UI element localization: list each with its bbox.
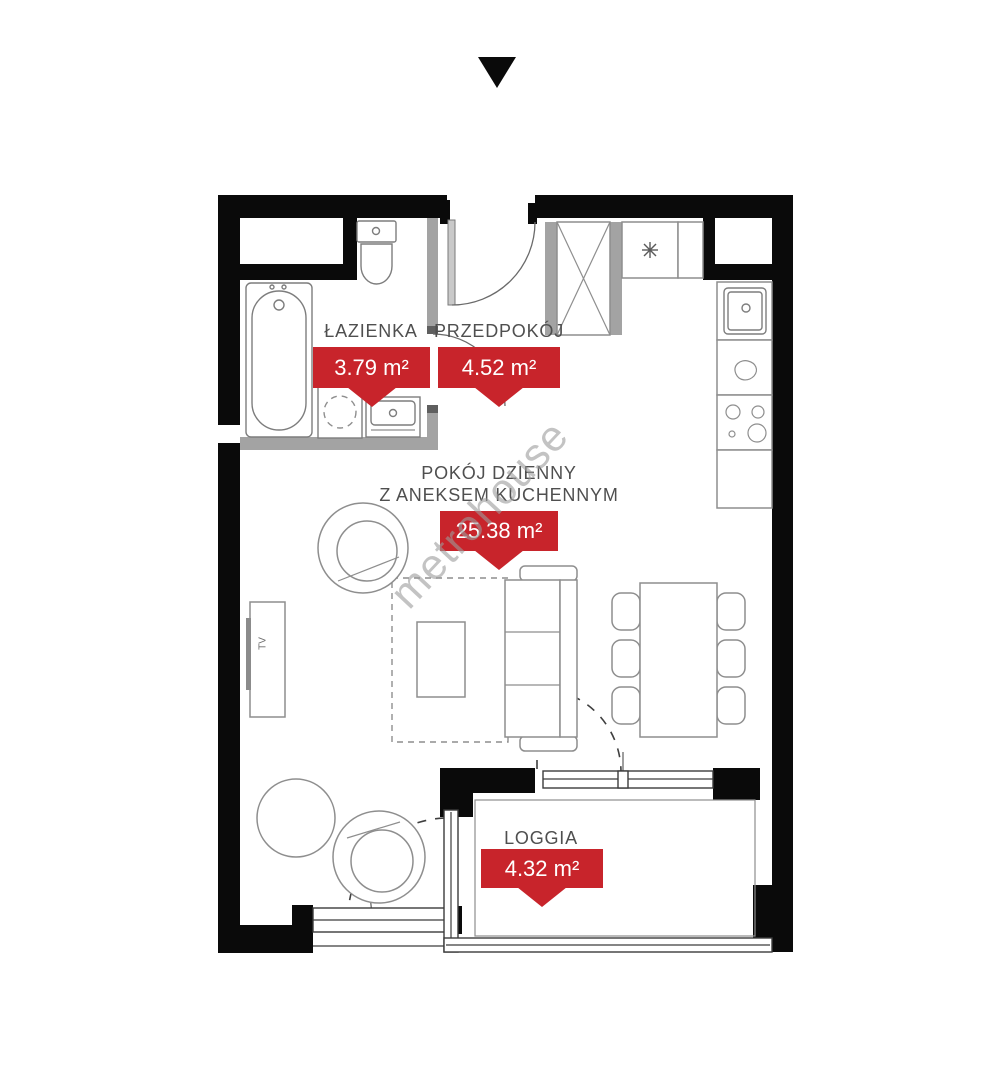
area-tag-przedpokoj: 4.52 m²: [438, 347, 560, 388]
floor-plan-page: ŁAZIENKA 3.79 m² PRZEDPOKÓJ 4.52 m² POKÓ…: [0, 0, 992, 1080]
toilet-button: [373, 228, 380, 235]
kitchen-counter-bottom: [717, 450, 772, 508]
wall-right: [772, 195, 793, 952]
round-table-icon: [257, 779, 335, 857]
shaft-left-side-wall: [343, 218, 357, 280]
entrance-door-leaf: [448, 220, 455, 305]
bathroom-wall-cap-bottom: [427, 405, 438, 413]
wall-bottom-left-pillar: [292, 905, 313, 953]
area-value-loggia: 4.32 m²: [505, 856, 580, 882]
entrance-door-arc: [452, 222, 535, 305]
area-value-przedpokoj: 4.52 m²: [462, 355, 537, 381]
wall-bottom-left: [218, 925, 294, 953]
bathtub-tap-dot-2: [282, 285, 286, 289]
coffee-table: [417, 622, 465, 697]
bathtub-tap-dot-1: [270, 285, 274, 289]
bathroom-sink-drain: [390, 410, 397, 417]
bathroom-wall-right: [427, 218, 438, 328]
kitchen-sink-drain: [742, 304, 750, 312]
area-tag-loggia: 4.32 m²: [481, 849, 603, 888]
cooktop-icon: [717, 395, 772, 450]
bathtub-inner: [252, 291, 306, 430]
wall-loggia-right-stub: [713, 768, 760, 800]
kitchen-counter-top: [678, 222, 703, 278]
room-label-lazienka: ŁAZIENKA: [324, 321, 417, 342]
room-label-loggia: LOGGIA: [504, 828, 578, 849]
wardrobe-wall-left: [545, 222, 557, 335]
sofa-icon: [505, 566, 577, 751]
dining-table-icon: [612, 583, 745, 737]
armchair-bottom-icon: [333, 811, 425, 903]
toilet-bowl-icon: [361, 244, 392, 284]
tv-label: TV: [258, 629, 269, 659]
shaft-right-bottom-wall: [703, 264, 793, 280]
fridge-snowflake-icon: [642, 242, 658, 258]
bathtub-drain: [274, 300, 284, 310]
room-label-przedpokoj: PRZEDPOKÓJ: [434, 321, 564, 342]
entrance-jamb-right: [528, 203, 537, 224]
area-tag-lazienka: 3.79 m²: [313, 347, 430, 388]
wall-left-lower: [218, 443, 240, 952]
tv-stand-icon: [246, 602, 285, 717]
wall-top-left: [218, 195, 447, 218]
wardrobe-wall-right: [610, 222, 622, 335]
wall-top-right: [535, 195, 793, 218]
kitchen-counter-mid: [717, 340, 772, 395]
balcony-window-mullion: [618, 771, 628, 788]
shaft-left-bottom-wall: [218, 264, 357, 280]
bathroom-wall-bottom: [240, 437, 438, 450]
area-value-lazienka: 3.79 m²: [334, 355, 409, 381]
wall-left-upper: [218, 195, 240, 425]
